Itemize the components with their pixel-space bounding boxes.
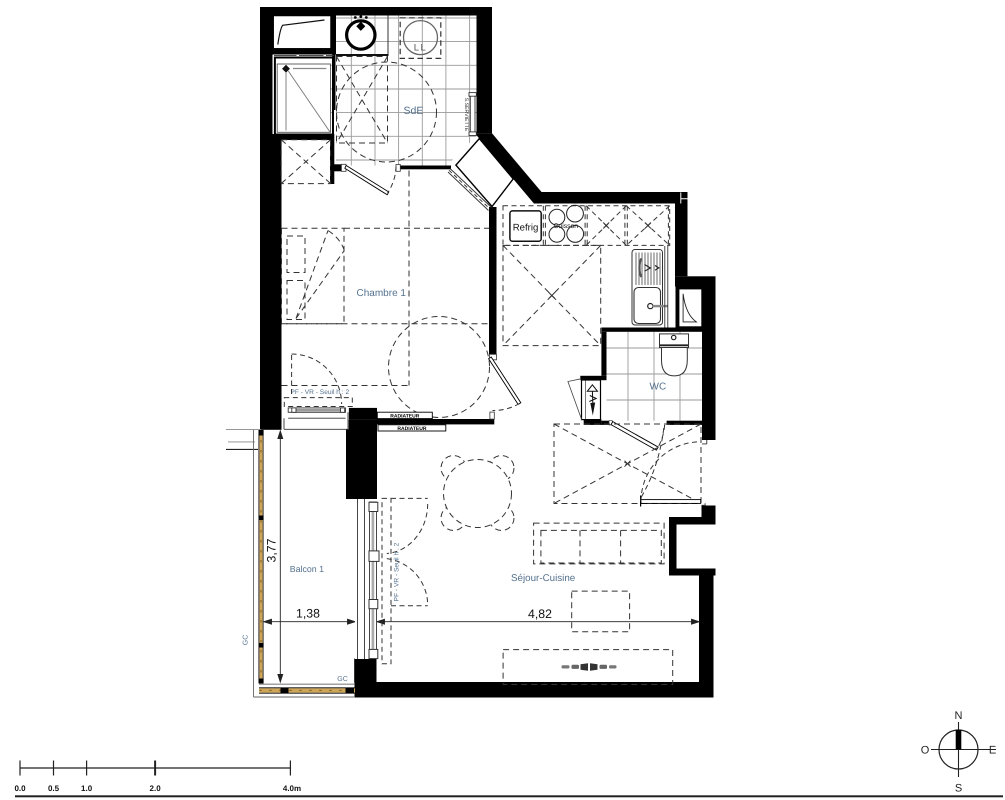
svg-text:Séjour-Cuisine: Séjour-Cuisine — [511, 573, 576, 584]
svg-text:Balcon 1: Balcon 1 — [290, 564, 324, 574]
svg-text:S.SERVIETTE: S.SERVIETTE — [463, 98, 469, 132]
svg-text:E: E — [989, 745, 996, 757]
svg-text:WC: WC — [650, 382, 667, 393]
svg-text:LL: LL — [414, 43, 428, 54]
svg-text:S: S — [955, 783, 962, 795]
svg-text:2.0: 2.0 — [150, 784, 162, 793]
svg-text:GC: GC — [243, 635, 250, 646]
svg-text:4.0m: 4.0m — [283, 784, 301, 793]
svg-text:0.0: 0.0 — [14, 784, 26, 793]
svg-text:0.5: 0.5 — [48, 784, 60, 793]
svg-text:RADIATEUR: RADIATEUR — [390, 413, 419, 419]
svg-text:N: N — [955, 710, 963, 722]
svg-text:1,38: 1,38 — [296, 607, 320, 621]
svg-text:4,82: 4,82 — [528, 607, 552, 621]
svg-text:Chambre 1: Chambre 1 — [357, 288, 407, 299]
svg-text:GC: GC — [337, 676, 348, 683]
svg-text:Refrig: Refrig — [513, 223, 539, 234]
svg-text:SdE: SdE — [404, 105, 424, 117]
svg-text:Cuisson: Cuisson — [554, 223, 579, 230]
svg-text:1.0: 1.0 — [81, 784, 93, 793]
svg-text:3,77: 3,77 — [265, 538, 279, 562]
svg-text:O: O — [921, 745, 930, 757]
svg-text:RADIATEUR: RADIATEUR — [397, 426, 426, 432]
